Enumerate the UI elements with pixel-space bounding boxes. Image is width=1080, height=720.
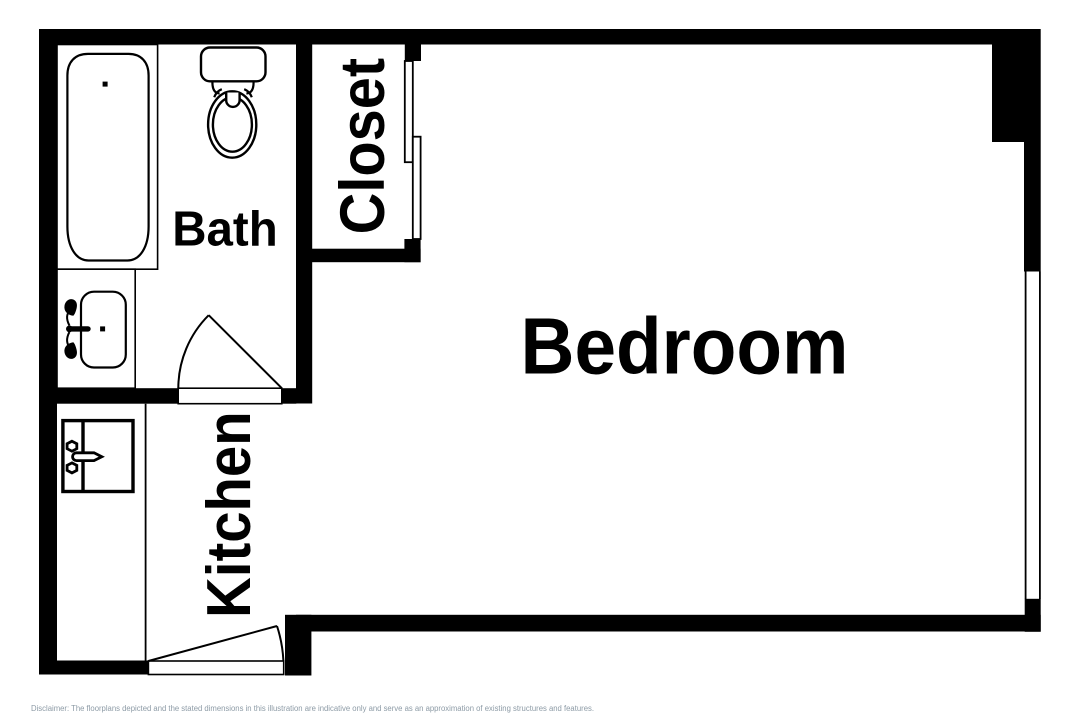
svg-text:Closet: Closet <box>328 58 398 235</box>
svg-text:Bedroom: Bedroom <box>521 301 849 390</box>
svg-text:Bath: Bath <box>172 203 278 257</box>
svg-text:Kitchen: Kitchen <box>195 411 264 618</box>
svg-text:Disclaimer: The floorplans dep: Disclaimer: The floorplans depicted and … <box>31 704 594 713</box>
